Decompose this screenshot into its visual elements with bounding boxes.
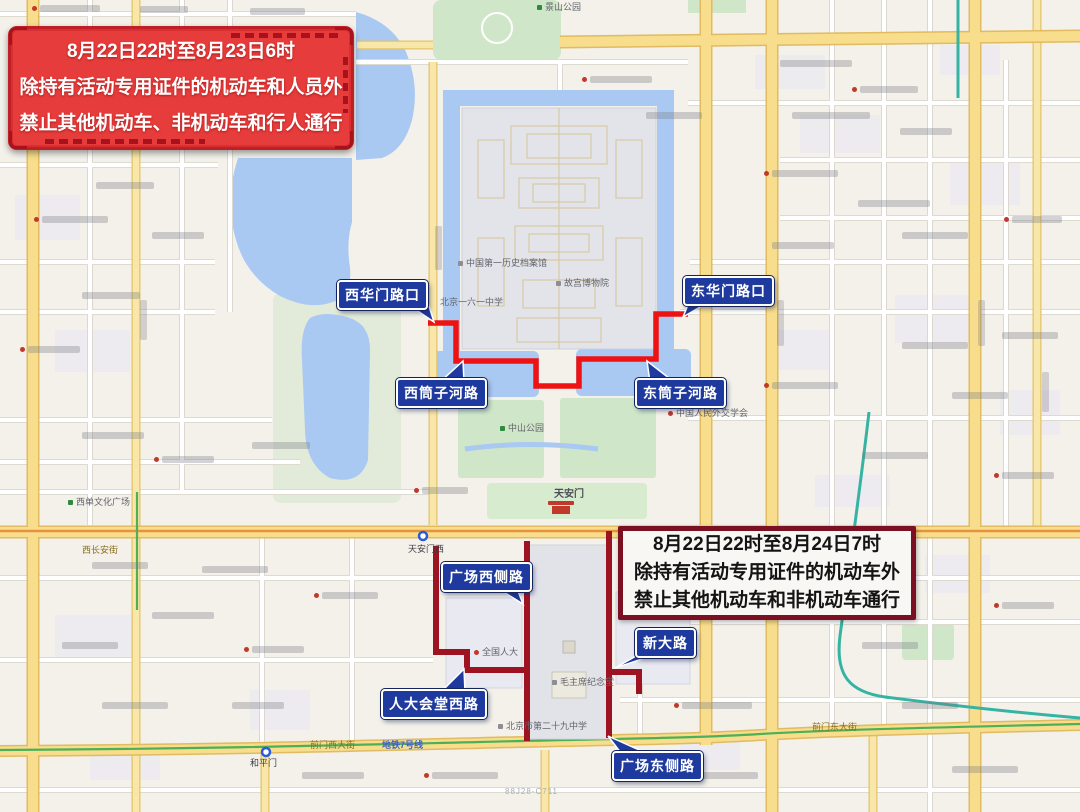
callout-great-hall-west-road: 人大会堂西路 (381, 689, 487, 719)
poi-text-smudge (682, 702, 752, 709)
callout-donghuamen-intersection: 东华门路口 (683, 276, 774, 306)
label-metro-line-7: 地铁7号线 (382, 740, 423, 750)
poi-text-smudge (1002, 472, 1054, 479)
street-name-smudge-vertical (140, 300, 147, 340)
poi-text-smudge (42, 216, 108, 223)
label-hepingmen-station: 和平门 (250, 758, 277, 768)
frame-ticks (231, 33, 341, 38)
poi-text-smudge (140, 6, 188, 13)
notice-pedestrian-vehicle-restriction: 8月22日22时至8月23日6时 除持有活动专用证件的机动车和人员外 禁止其他机… (8, 26, 354, 150)
notice-maroon-line3: 禁止其他机动车和非机动车通行 (634, 587, 900, 615)
label-npc: 全国人大 (474, 647, 518, 657)
poi-text-smudge (1002, 332, 1058, 339)
moat-north (443, 90, 674, 106)
poi-text-smudge (202, 566, 268, 573)
notice-red-line2: 除持有活动专用证件的机动车和人员外 (19, 70, 342, 106)
label-zhongshan-park: 中山公园 (500, 423, 544, 433)
poi-text-smudge (702, 772, 758, 779)
poi-text-smudge (772, 382, 838, 389)
poi-text-smudge (422, 487, 468, 494)
tiananmen-west-station-dot (419, 532, 427, 540)
notice-motor-vehicle-restriction: 8月22日22时至8月24日7时 除持有活动专用证件的机动车外 禁止其他机动车和… (618, 526, 916, 620)
poi-text-smudge (862, 642, 918, 649)
callout-east-tongzi-river-road: 东筒子河路 (635, 378, 726, 408)
zhongnanhai-lake (302, 314, 370, 480)
frame-corner (9, 131, 27, 149)
great-hall-of-people (446, 598, 522, 688)
poi-text-smudge (252, 442, 310, 449)
poi-text-smudge (28, 346, 80, 353)
poi-text-smudge (780, 60, 852, 67)
poi-text-smudge (302, 772, 364, 779)
poi-text-smudge (82, 432, 144, 439)
label-tiananmen: 天安门 (554, 490, 584, 500)
poi-text-smudge (82, 292, 140, 299)
poi-text-smudge (152, 232, 204, 239)
label-qianmen-east-street: 前门东大街 (812, 722, 857, 732)
label-first-historical-archives: 中国第一历史档案馆 (458, 258, 547, 268)
poi-text-smudge (152, 612, 214, 619)
notice-maroon-line2: 除持有活动专用证件的机动车外 (634, 559, 900, 587)
poi-text-smudge (860, 86, 918, 93)
label-palace-museum: 故宫博物院 (556, 278, 609, 288)
poi-text-smudge (232, 702, 284, 709)
poi-text-smudge (952, 392, 1008, 399)
poi-text-smudge (92, 562, 148, 569)
poi-text-smudge (952, 766, 1018, 773)
poi-text-smudge (858, 200, 930, 207)
notice-red-line1: 8月22日22时至8月23日6时 (67, 34, 295, 70)
poi-text-smudge (772, 242, 834, 249)
callout-west-tongzi-river-road: 西筒子河路 (396, 378, 487, 408)
poi-text-smudge (102, 702, 168, 709)
monument-peoples-heroes (563, 641, 575, 653)
hepingmen-station-dot (262, 748, 270, 756)
frame-ticks (343, 57, 348, 113)
street-name-smudge-vertical (777, 300, 784, 346)
frame-corner (9, 27, 27, 45)
label-school-161: 北京一六一中学 (440, 297, 503, 307)
poi-text-smudge (646, 112, 702, 119)
poi-text-smudge (862, 452, 928, 459)
poi-text-smudge (432, 772, 498, 779)
label-mao-memorial: 毛主席纪念堂 (552, 677, 614, 687)
label-qianmen-west-street: 前门西大街 (310, 740, 355, 750)
label-tiananmen-west-station: 天安门西 (408, 544, 444, 554)
poi-text-smudge (792, 112, 870, 119)
poi-text-smudge (902, 342, 968, 349)
poi-text-smudge (900, 128, 952, 135)
poi-text-smudge (162, 456, 214, 463)
traffic-restriction-map: 景山公园 中山公园 故宫博物院 中国第一历史档案馆 天安门 天安门西 北京一六一… (0, 0, 1080, 812)
poi-text-smudge (590, 76, 652, 83)
moat-east (657, 90, 674, 358)
notice-red-line3: 禁止其他机动车、非机动车和行人通行 (19, 106, 342, 142)
poi-text-smudge (902, 702, 958, 709)
poi-text-smudge (902, 232, 968, 239)
callout-square-east-side-road: 广场东侧路 (612, 751, 703, 781)
label-jingshan-park: 景山公园 (537, 2, 581, 12)
label-xidan-culture-plaza: 西单文化广场 (68, 497, 130, 507)
label-school-29: 北京市第二十九中学 (498, 721, 587, 731)
working-peoples-palace-area (560, 398, 656, 478)
poi-text-smudge (322, 592, 378, 599)
callout-xindalu-road: 新大路 (635, 628, 696, 658)
frame-corner (335, 131, 353, 149)
street-name-smudge-vertical (978, 300, 985, 346)
map-watermark: 88J28-C711 (505, 787, 558, 796)
frame-ticks (45, 139, 205, 144)
poi-text-smudge (1002, 602, 1054, 609)
poi-text-smudge (40, 5, 100, 12)
poi-text-smudge (1012, 216, 1062, 223)
notice-maroon-line1: 8月22日22时至8月24日7时 (653, 531, 881, 559)
callout-xihuamen-intersection: 西华门路口 (337, 280, 428, 310)
zhongshan-park-area (458, 400, 544, 478)
callout-square-west-side-road: 广场西侧路 (441, 562, 532, 592)
label-foreign-affairs-society: 中国人民外交学会 (668, 408, 748, 418)
label-west-changan-avenue: 西长安街 (82, 545, 118, 555)
street-name-smudge-vertical (435, 226, 442, 270)
poi-text-smudge (772, 170, 838, 177)
poi-text-smudge (250, 8, 305, 15)
poi-text-smudge (252, 646, 304, 653)
street-name-smudge-vertical (1042, 372, 1049, 412)
poi-text-smudge (96, 182, 154, 189)
poi-text-smudge (62, 642, 118, 649)
